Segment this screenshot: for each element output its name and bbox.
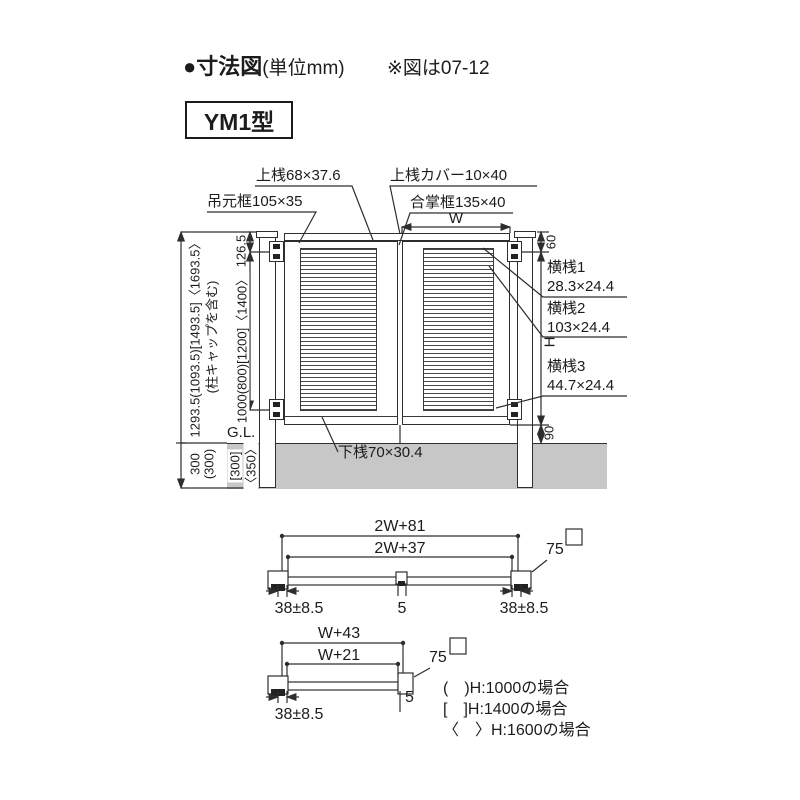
- legend-item-h1600: 〈 〉H:1600の場合: [443, 721, 591, 740]
- label-hinge-pitch: 1000(800)[1200]〈1400〉: [235, 271, 250, 425]
- label-double-inner-width: 2W+37: [374, 539, 425, 558]
- legend-item-h1400: [ ]H:1400の場合: [443, 700, 568, 719]
- label-single-edge-gap: 5: [405, 688, 414, 707]
- label-crossbar2-name: 横桟2: [547, 299, 585, 318]
- label-crossbar1-size: 28.3×24.4: [547, 277, 614, 296]
- label-double-left-offset: 38±8.5: [275, 599, 324, 618]
- label-leaf-width: W: [449, 209, 463, 228]
- label-crossbar2-size: 103×24.4: [547, 318, 610, 337]
- label-overall-height-note: (柱キャップを含む): [205, 281, 220, 394]
- label-embed-depth-angle: 〈350〉: [244, 440, 259, 492]
- label-top-offset: 126.5: [234, 235, 249, 268]
- label-single-post-size: 75: [429, 648, 447, 667]
- label-bottom-gap: 90: [542, 426, 557, 440]
- label-crossbar3-size: 44.7×24.4: [547, 376, 614, 395]
- label-single-left-offset: 38±8.5: [275, 705, 324, 724]
- dimension-drawing-page: ●寸法図(単位mm) ※図は07-12 YM1型: [0, 0, 800, 800]
- label-single-outer-width: W+43: [318, 624, 360, 643]
- label-top-gap: 60: [544, 235, 559, 249]
- label-ground-line: G.L.: [227, 423, 255, 442]
- label-embed-depth-paren: (300): [202, 449, 217, 479]
- label-double-center-gap: 5: [398, 599, 407, 618]
- label-double-outer-width: 2W+81: [374, 517, 425, 536]
- label-crossbar3-name: 横桟3: [547, 357, 585, 376]
- label-double-post-size: 75: [546, 540, 564, 559]
- label-overall-height: 1293.5(1093.5)[1493.5]〈1693.5〉: [188, 237, 203, 438]
- label-embed-depth-bracket: [300]: [228, 450, 243, 483]
- label-top-rail: 上桟68×37.6: [256, 166, 341, 185]
- label-single-inner-width: W+21: [318, 646, 360, 665]
- label-bottom-rail: 下桟70×30.4: [338, 443, 423, 462]
- label-hinge-stile: 吊元框105×35: [207, 192, 302, 211]
- legend-item-h1000: ( )H:1000の場合: [443, 679, 569, 698]
- dimension-lines: [0, 0, 800, 800]
- label-gate-height: H: [541, 337, 560, 348]
- label-crossbar1-name: 横桟1: [547, 258, 585, 277]
- label-top-rail-cover: 上桟カバー10×40: [390, 166, 507, 185]
- label-embed-depth: 300: [188, 453, 203, 475]
- label-double-right-offset: 38±8.5: [500, 599, 549, 618]
